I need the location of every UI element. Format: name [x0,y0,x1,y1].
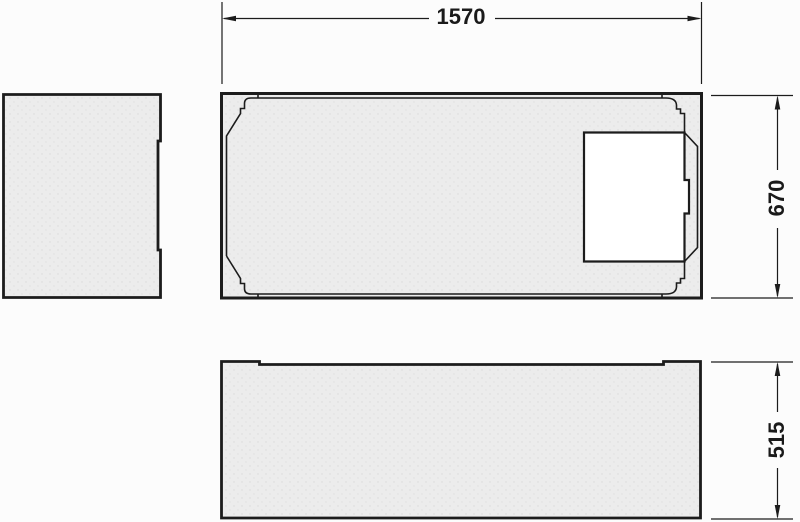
dimension-width-arrow-left [222,16,236,22]
side-panel-view [4,95,161,298]
top-view [222,94,702,299]
drawing-svg [0,0,800,522]
dimension-depth-arrow-top [775,96,781,110]
side-panel-outline [4,95,161,298]
dimension-width-label: 1570 [411,3,511,31]
dimension-height-label: 515 [764,390,790,490]
front-view [222,362,701,519]
dimension-width-arrow-right [688,16,702,22]
dimension-height-arrow-top [775,362,781,376]
technical-drawing-canvas: 1570 670 515 [0,0,800,522]
dimension-depth-arrow-bottom [775,284,781,298]
front-view-outline [222,362,701,519]
dimension-height-arrow-bottom [775,505,781,519]
dimension-depth-label: 670 [764,148,790,248]
top-view-cutout [584,133,689,262]
